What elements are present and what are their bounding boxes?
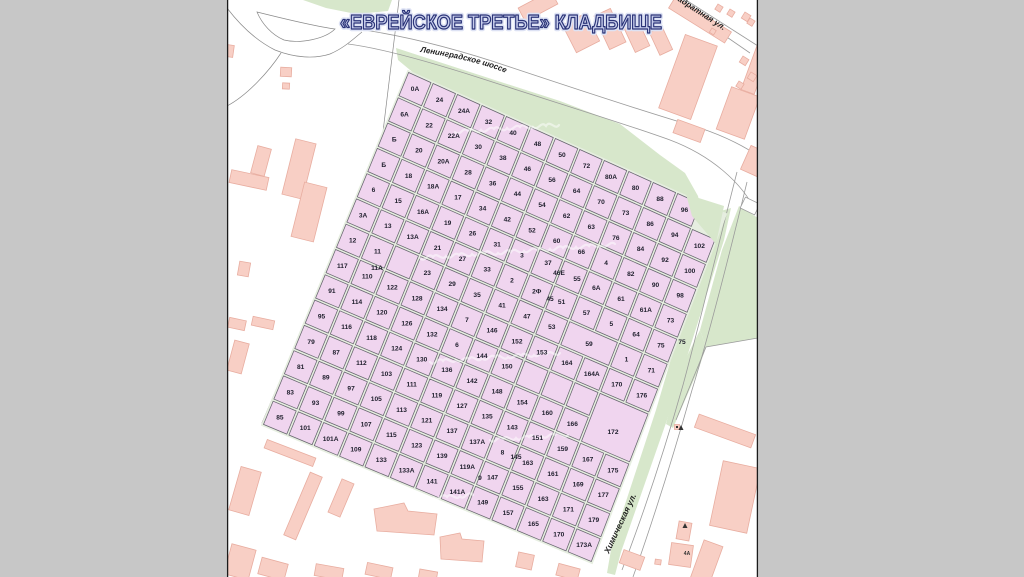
svg-text:56: 56	[548, 177, 556, 184]
svg-text:100: 100	[684, 268, 695, 275]
svg-text:66: 66	[578, 249, 586, 256]
svg-text:92: 92	[661, 257, 669, 264]
svg-text:37: 37	[544, 260, 552, 267]
svg-text:Б: Б	[392, 137, 397, 144]
svg-text:153: 153	[536, 349, 547, 356]
svg-text:130: 130	[416, 356, 427, 363]
svg-text:176: 176	[636, 393, 647, 400]
svg-text:40: 40	[509, 130, 517, 137]
svg-text:91: 91	[328, 288, 336, 295]
svg-text:18: 18	[405, 173, 413, 180]
svg-text:155: 155	[512, 485, 523, 492]
svg-text:2Ф: 2Ф	[532, 288, 542, 295]
svg-text:94: 94	[671, 232, 679, 239]
svg-text:51: 51	[558, 299, 566, 306]
svg-text:50: 50	[558, 152, 566, 159]
svg-text:128: 128	[412, 295, 423, 302]
svg-text:9: 9	[478, 475, 482, 482]
svg-text:64: 64	[573, 188, 581, 195]
svg-text:133: 133	[376, 457, 387, 464]
svg-text:6: 6	[372, 187, 376, 194]
svg-text:29: 29	[449, 281, 457, 288]
svg-text:112: 112	[356, 360, 367, 367]
svg-text:141: 141	[426, 478, 437, 485]
svg-text:118: 118	[366, 335, 377, 342]
svg-text:179: 179	[588, 517, 599, 524]
svg-text:30: 30	[475, 144, 483, 151]
svg-text:147: 147	[487, 475, 498, 482]
svg-text:61: 61	[617, 296, 625, 303]
svg-text:18А: 18А	[427, 184, 439, 191]
svg-text:35: 35	[473, 292, 481, 299]
svg-text:102: 102	[694, 243, 705, 250]
svg-text:20А: 20А	[437, 158, 449, 165]
svg-text:34: 34	[479, 206, 487, 213]
svg-text:88: 88	[656, 196, 664, 203]
svg-text:16А: 16А	[417, 209, 429, 216]
svg-text:79: 79	[307, 339, 315, 346]
svg-text:117: 117	[337, 263, 348, 270]
svg-text:63: 63	[588, 224, 596, 231]
svg-text:146: 146	[486, 328, 497, 335]
svg-text:21: 21	[434, 245, 442, 252]
svg-text:132: 132	[426, 331, 437, 338]
svg-text:145: 145	[510, 454, 521, 461]
svg-text:47: 47	[523, 313, 531, 320]
svg-text:24: 24	[436, 97, 444, 104]
svg-text:0А: 0А	[411, 86, 420, 93]
svg-text:26: 26	[469, 231, 477, 238]
svg-text:80А: 80А	[605, 174, 617, 181]
svg-text:22: 22	[426, 122, 434, 129]
svg-text:5: 5	[609, 321, 613, 328]
svg-text:41: 41	[498, 303, 506, 310]
svg-text:15: 15	[395, 198, 403, 205]
svg-text:99: 99	[337, 411, 345, 418]
svg-text:170: 170	[611, 382, 622, 389]
svg-text:44: 44	[514, 191, 522, 198]
svg-text:23: 23	[424, 270, 432, 277]
svg-text:97: 97	[347, 385, 355, 392]
svg-text:27: 27	[459, 256, 467, 263]
svg-text:135: 135	[482, 414, 493, 421]
svg-text:95: 95	[318, 314, 326, 321]
svg-text:13: 13	[384, 223, 392, 230]
svg-text:103: 103	[381, 371, 392, 378]
svg-text:172: 172	[607, 429, 618, 436]
svg-text:134: 134	[437, 306, 448, 313]
svg-text:82: 82	[627, 271, 635, 278]
svg-text:169: 169	[573, 482, 584, 489]
svg-text:«ЕВРЕЙСКОЕ ТРЕТЬЕ» КЛАДБИЩЕ: «ЕВРЕЙСКОЕ ТРЕТЬЕ» КЛАДБИЩЕ	[340, 10, 662, 34]
svg-text:76: 76	[612, 235, 620, 242]
svg-text:151: 151	[532, 435, 543, 442]
svg-text:148: 148	[492, 389, 503, 396]
svg-text:167: 167	[582, 457, 593, 464]
svg-text:57: 57	[583, 310, 591, 317]
svg-text:46: 46	[524, 166, 532, 173]
svg-text:3А: 3А	[359, 212, 368, 219]
svg-text:2: 2	[510, 278, 514, 285]
svg-text:136: 136	[441, 367, 452, 374]
svg-text:87: 87	[333, 350, 341, 357]
svg-text:24А: 24А	[458, 108, 470, 115]
svg-text:150: 150	[501, 364, 512, 371]
svg-text:119А: 119А	[460, 464, 476, 471]
svg-text:61А: 61А	[640, 307, 652, 314]
svg-text:13А: 13А	[407, 234, 419, 241]
svg-text:6: 6	[455, 342, 459, 349]
svg-text:154: 154	[517, 399, 528, 406]
svg-text:19: 19	[444, 220, 452, 227]
svg-text:4А: 4А	[684, 551, 691, 557]
svg-text:64: 64	[632, 332, 640, 339]
svg-text:171: 171	[563, 507, 574, 514]
svg-text:96: 96	[681, 207, 689, 214]
svg-text:119: 119	[431, 392, 442, 399]
svg-text:121: 121	[421, 417, 432, 424]
svg-text:157: 157	[503, 510, 514, 517]
svg-text:7: 7	[465, 317, 469, 324]
svg-text:3: 3	[520, 252, 524, 259]
svg-text:139: 139	[436, 453, 447, 460]
svg-text:22А: 22А	[448, 133, 460, 140]
svg-text:149: 149	[477, 500, 488, 507]
svg-text:32: 32	[485, 119, 493, 126]
svg-text:175: 175	[607, 467, 618, 474]
svg-text:163: 163	[522, 460, 533, 467]
svg-text:1: 1	[625, 357, 629, 364]
svg-text:107: 107	[361, 421, 372, 428]
svg-text:165: 165	[528, 521, 539, 528]
svg-text:105: 105	[371, 396, 382, 403]
svg-text:60: 60	[553, 238, 561, 245]
svg-text:111: 111	[407, 382, 418, 389]
svg-text:31: 31	[494, 242, 502, 249]
svg-text:173А: 173А	[576, 542, 592, 549]
svg-text:86: 86	[647, 221, 655, 228]
svg-text:72: 72	[583, 163, 591, 170]
svg-text:28: 28	[464, 169, 472, 176]
svg-text:75: 75	[678, 339, 686, 346]
svg-text:101А: 101А	[323, 436, 339, 443]
svg-text:6А: 6А	[592, 285, 601, 292]
svg-text:84: 84	[637, 246, 645, 253]
svg-text:114: 114	[352, 299, 363, 306]
svg-text:144: 144	[476, 353, 487, 360]
svg-text:8: 8	[501, 450, 505, 457]
svg-text:59: 59	[585, 341, 593, 348]
svg-text:109: 109	[350, 447, 361, 454]
svg-text:45: 45	[546, 296, 554, 303]
svg-text:38: 38	[499, 155, 507, 162]
svg-text:122: 122	[387, 285, 398, 292]
svg-text:71: 71	[648, 368, 656, 375]
svg-text:70: 70	[597, 199, 605, 206]
svg-text:20: 20	[415, 148, 423, 155]
svg-text:164: 164	[561, 360, 572, 367]
svg-text:11А: 11А	[371, 265, 383, 272]
svg-text:33: 33	[484, 267, 492, 274]
svg-text:17: 17	[454, 195, 462, 202]
svg-text:81: 81	[297, 364, 305, 371]
svg-text:177: 177	[598, 492, 609, 499]
svg-text:75: 75	[657, 343, 665, 350]
svg-text:124: 124	[391, 346, 402, 353]
svg-text:Б: Б	[381, 162, 386, 169]
svg-text:137А: 137А	[469, 439, 485, 446]
svg-text:170: 170	[553, 532, 564, 539]
svg-text:120: 120	[376, 310, 387, 317]
svg-text:143: 143	[507, 424, 518, 431]
svg-text:90: 90	[652, 282, 660, 289]
svg-text:89: 89	[322, 375, 330, 382]
svg-text:123: 123	[411, 443, 422, 450]
svg-text:101: 101	[300, 425, 311, 432]
svg-text:83: 83	[287, 389, 295, 396]
svg-text:98: 98	[677, 293, 685, 300]
svg-text:164А: 164А	[584, 371, 600, 378]
svg-text:152: 152	[511, 339, 522, 346]
svg-text:62: 62	[563, 213, 571, 220]
svg-text:113: 113	[396, 407, 407, 414]
svg-text:55: 55	[573, 276, 581, 283]
svg-text:142: 142	[466, 378, 477, 385]
svg-text:126: 126	[401, 321, 412, 328]
svg-text:166: 166	[567, 421, 578, 428]
svg-text:36: 36	[489, 180, 497, 187]
svg-text:42: 42	[504, 216, 512, 223]
svg-text:52: 52	[528, 227, 536, 234]
svg-text:115: 115	[386, 432, 397, 439]
svg-text:12: 12	[349, 238, 357, 245]
svg-text:85: 85	[276, 415, 284, 422]
svg-text:141А: 141А	[450, 489, 466, 496]
svg-text:73: 73	[667, 318, 675, 325]
svg-text:163: 163	[538, 496, 549, 503]
svg-text:133А: 133А	[399, 468, 415, 475]
svg-text:160: 160	[542, 410, 553, 417]
svg-text:80: 80	[632, 185, 640, 192]
svg-text:93: 93	[312, 400, 320, 407]
svg-text:137: 137	[446, 428, 457, 435]
svg-text:161: 161	[547, 471, 558, 478]
svg-text:54: 54	[538, 202, 546, 209]
svg-text:110: 110	[362, 274, 373, 281]
svg-text:53: 53	[548, 324, 556, 331]
svg-text:127: 127	[456, 403, 467, 410]
svg-text:46Е: 46Е	[553, 270, 565, 277]
svg-text:6А: 6А	[400, 111, 409, 118]
svg-text:11: 11	[374, 249, 381, 256]
svg-text:116: 116	[341, 324, 352, 331]
svg-text:73: 73	[622, 210, 630, 217]
svg-text:159: 159	[557, 446, 568, 453]
svg-text:48: 48	[534, 141, 542, 148]
svg-text:4: 4	[604, 260, 608, 267]
